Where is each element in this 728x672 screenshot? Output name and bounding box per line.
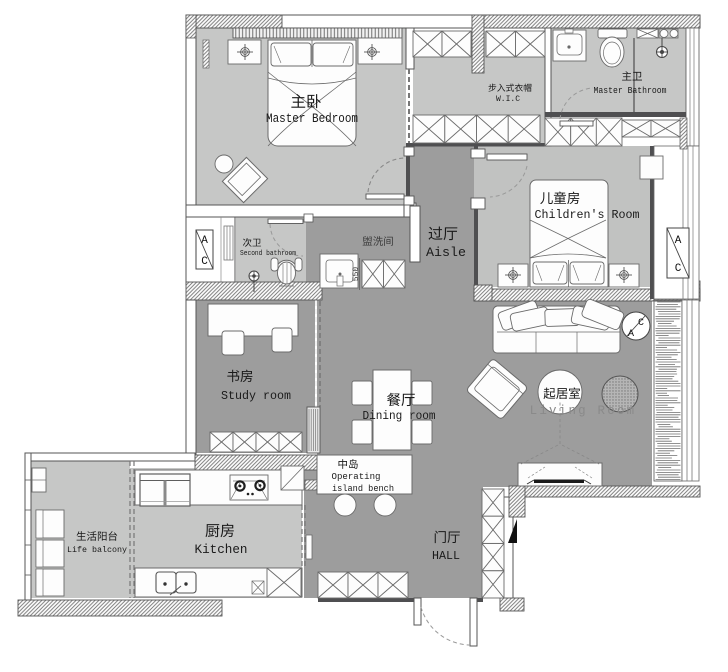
svg-text:550: 550 <box>352 267 361 282</box>
svg-text:Master Bedroom: Master Bedroom <box>266 112 358 126</box>
svg-text:Master Bathroom: Master Bathroom <box>594 85 667 96</box>
svg-text:Living Room: Living Room <box>530 404 637 418</box>
svg-text:W.I.C: W.I.C <box>496 94 520 104</box>
svg-text:Kitchen: Kitchen <box>195 543 248 557</box>
svg-text:Life balcony: Life balcony <box>67 546 127 555</box>
svg-text:HALL: HALL <box>432 549 460 563</box>
svg-text:C: C <box>201 256 208 268</box>
svg-text:A: A <box>201 235 208 247</box>
svg-text:C: C <box>638 318 644 329</box>
svg-text:Aisle: Aisle <box>426 246 466 260</box>
svg-text:Study room: Study room <box>221 390 291 403</box>
svg-text:C: C <box>675 263 682 275</box>
svg-text:A: A <box>628 329 634 340</box>
svg-text:Operating: Operating <box>332 471 381 482</box>
svg-text:Dining room: Dining room <box>363 410 436 423</box>
svg-text:Second bathroom: Second bathroom <box>240 250 296 258</box>
svg-text:island bench: island bench <box>332 483 394 494</box>
svg-text:Children's Room: Children's Room <box>535 209 640 222</box>
svg-text:A: A <box>675 235 682 247</box>
